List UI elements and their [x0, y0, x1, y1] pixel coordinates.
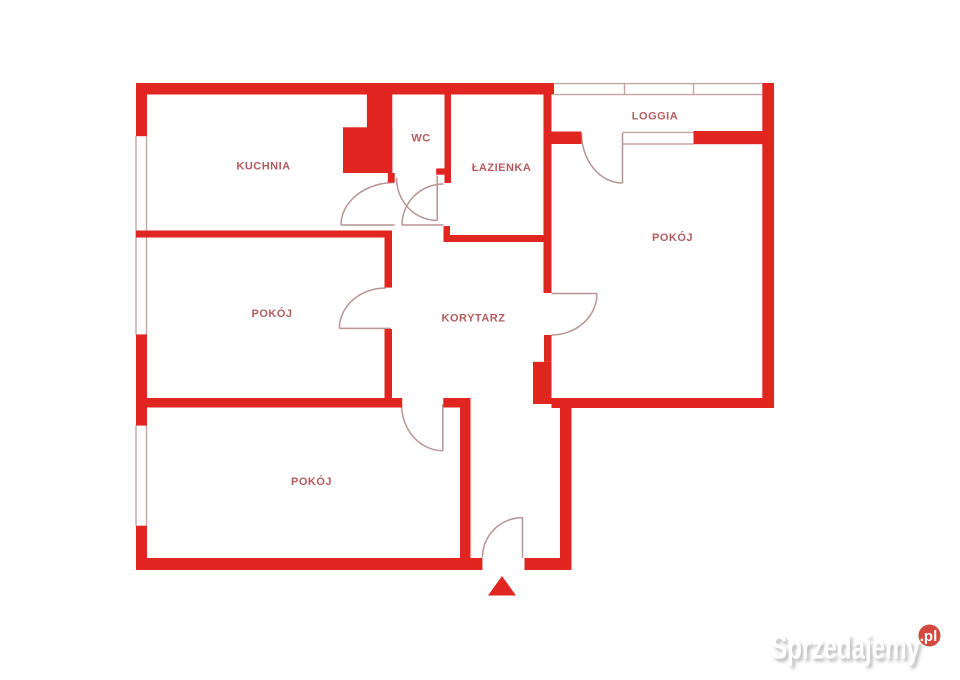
svg-text:WC: WC — [411, 133, 430, 145]
svg-text:KORYTARZ: KORYTARZ — [442, 312, 506, 324]
svg-text:LOGGIA: LOGGIA — [632, 111, 678, 123]
svg-text:KUCHNIA: KUCHNIA — [236, 161, 290, 173]
svg-text:.pl: .pl — [920, 628, 938, 645]
svg-text:POKÓJ: POKÓJ — [291, 475, 332, 488]
svg-text:POKÓJ: POKÓJ — [251, 307, 292, 320]
svg-text:ŁAZIENKA: ŁAZIENKA — [472, 162, 532, 174]
svg-text:POKÓJ: POKÓJ — [652, 231, 693, 244]
svg-text:Sprzedajemy: Sprzedajemy — [771, 630, 920, 667]
